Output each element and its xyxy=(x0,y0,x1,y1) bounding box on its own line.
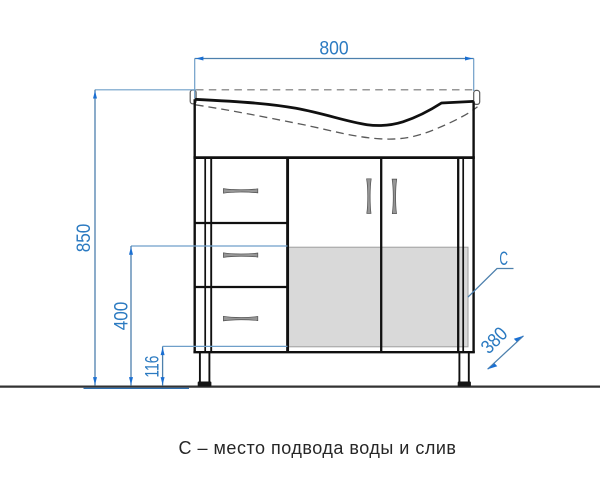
svg-text:С – место подвода воды и слив: С – место подвода воды и слив xyxy=(179,438,457,458)
svg-text:116: 116 xyxy=(141,356,163,378)
svg-text:С: С xyxy=(499,249,508,269)
svg-text:400: 400 xyxy=(109,302,131,331)
svg-text:850: 850 xyxy=(72,224,94,253)
svg-text:800: 800 xyxy=(319,37,348,59)
